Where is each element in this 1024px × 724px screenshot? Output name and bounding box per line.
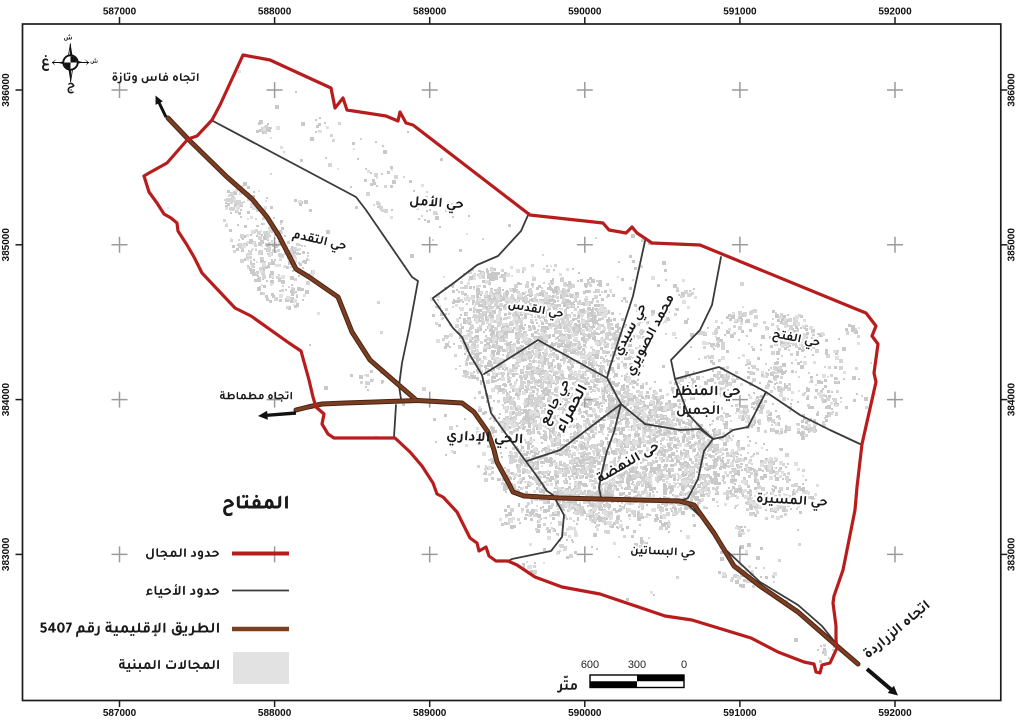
svg-text:384000: 384000 xyxy=(1007,382,1018,416)
svg-text:589000: 589000 xyxy=(413,7,447,18)
svg-text:385000: 385000 xyxy=(1,228,12,262)
svg-text:589000: 589000 xyxy=(413,708,447,719)
svg-text:590000: 590000 xyxy=(568,708,602,719)
svg-text:384000: 384000 xyxy=(1,382,12,416)
svg-text:587000: 587000 xyxy=(103,708,137,719)
svg-text:386000: 386000 xyxy=(1,73,12,107)
svg-text:385000: 385000 xyxy=(1007,228,1018,262)
svg-text:590000: 590000 xyxy=(568,7,602,18)
svg-text:591000: 591000 xyxy=(723,7,757,18)
svg-text:588000: 588000 xyxy=(258,708,292,719)
svg-text:588000: 588000 xyxy=(258,7,292,18)
svg-text:592000: 592000 xyxy=(878,7,912,18)
svg-text:383000: 383000 xyxy=(1,537,12,571)
svg-text:300: 300 xyxy=(628,659,646,671)
svg-text:600: 600 xyxy=(581,659,599,671)
svg-text:386000: 386000 xyxy=(1007,73,1018,107)
svg-text:587000: 587000 xyxy=(103,7,137,18)
svg-text:592000: 592000 xyxy=(878,708,912,719)
svg-text:383000: 383000 xyxy=(1007,537,1018,571)
svg-text:591000: 591000 xyxy=(723,708,757,719)
svg-text:0: 0 xyxy=(681,659,687,671)
